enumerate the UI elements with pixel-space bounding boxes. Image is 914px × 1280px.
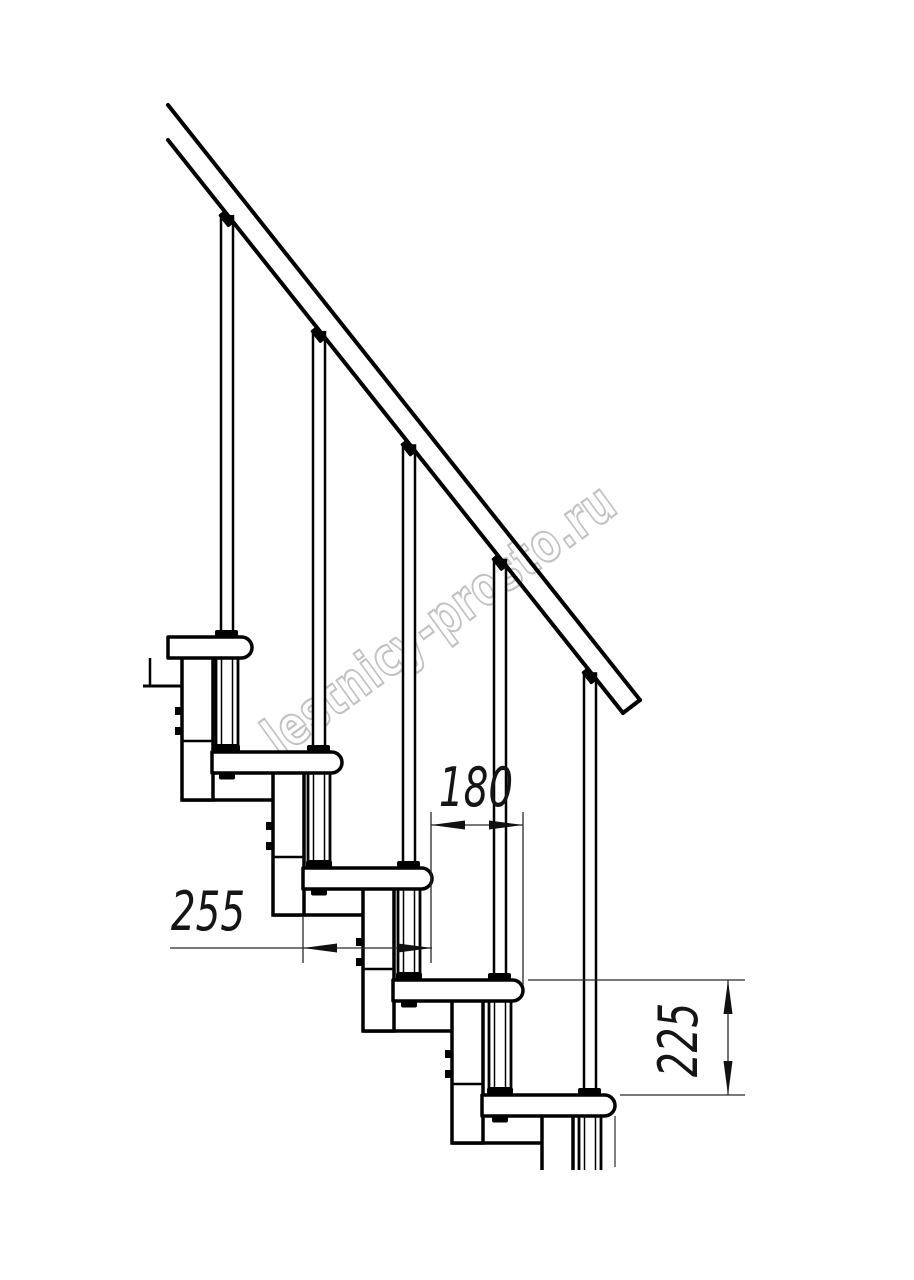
stringer-bolt-tab bbox=[266, 822, 273, 830]
dimension-label-step-rise: 225 bbox=[648, 1003, 711, 1077]
dimension-label-tread-depth: 255 bbox=[171, 881, 245, 944]
tube-seat-flange bbox=[306, 860, 332, 868]
baluster-base-flange bbox=[397, 861, 420, 868]
tube-fastener-nut bbox=[492, 1116, 508, 1123]
stair-tread bbox=[482, 1095, 615, 1116]
baluster-post bbox=[584, 673, 596, 1095]
baluster-post bbox=[221, 216, 233, 637]
stringer-bolt-tab bbox=[266, 842, 273, 850]
stair-tread bbox=[212, 752, 342, 773]
stringer-bolt-tab bbox=[356, 958, 363, 966]
stringer-bolt-tab bbox=[445, 1050, 452, 1058]
drawing-page: lestnicy-prosto.ru 180 255 225 bbox=[0, 0, 914, 1280]
stringer-bolt-tab bbox=[175, 727, 182, 735]
stair-tread bbox=[393, 980, 523, 1001]
stair-tread bbox=[168, 637, 252, 658]
baluster-post bbox=[313, 332, 325, 752]
watermark-text: lestnicy-prosto.ru bbox=[251, 472, 628, 769]
stringer-module-column bbox=[182, 657, 213, 800]
stringer-bolt-tab bbox=[175, 707, 182, 715]
staircase-technical-drawing: lestnicy-prosto.ru 180 255 225 bbox=[0, 0, 914, 1280]
tube-fastener-nut bbox=[401, 1001, 417, 1008]
connector-tube bbox=[216, 657, 238, 746]
dimension-arrow bbox=[724, 1061, 733, 1095]
stringer-bolt-tab bbox=[445, 1070, 452, 1078]
connector-tube bbox=[308, 772, 330, 862]
stair-tread bbox=[303, 868, 432, 889]
tube-fastener-nut bbox=[219, 773, 235, 780]
tube-seat-flange bbox=[214, 744, 240, 752]
dimension-label-step-run: 180 bbox=[439, 757, 513, 820]
tube-fastener-nut bbox=[311, 889, 327, 896]
dimension-arrow bbox=[303, 944, 337, 953]
stringer-module-column bbox=[452, 1000, 483, 1143]
baluster-base-flange bbox=[488, 973, 511, 980]
stringer-module-column bbox=[363, 888, 394, 1031]
stringer-bolt-tab bbox=[356, 938, 363, 946]
dimension-arrow bbox=[431, 821, 465, 830]
baluster-base-flange bbox=[307, 745, 330, 752]
baluster-base-flange bbox=[578, 1088, 601, 1095]
stringer-module-column bbox=[273, 772, 304, 915]
handrail-end-cap bbox=[623, 700, 640, 713]
tube-seat-flange bbox=[487, 1087, 513, 1095]
baluster-post bbox=[403, 446, 415, 868]
connector-tube bbox=[489, 1000, 511, 1089]
tube-seat-flange bbox=[396, 972, 422, 980]
connector-tube bbox=[398, 888, 420, 974]
dimension-arrow bbox=[724, 980, 733, 1014]
baluster-base-flange bbox=[215, 630, 238, 637]
